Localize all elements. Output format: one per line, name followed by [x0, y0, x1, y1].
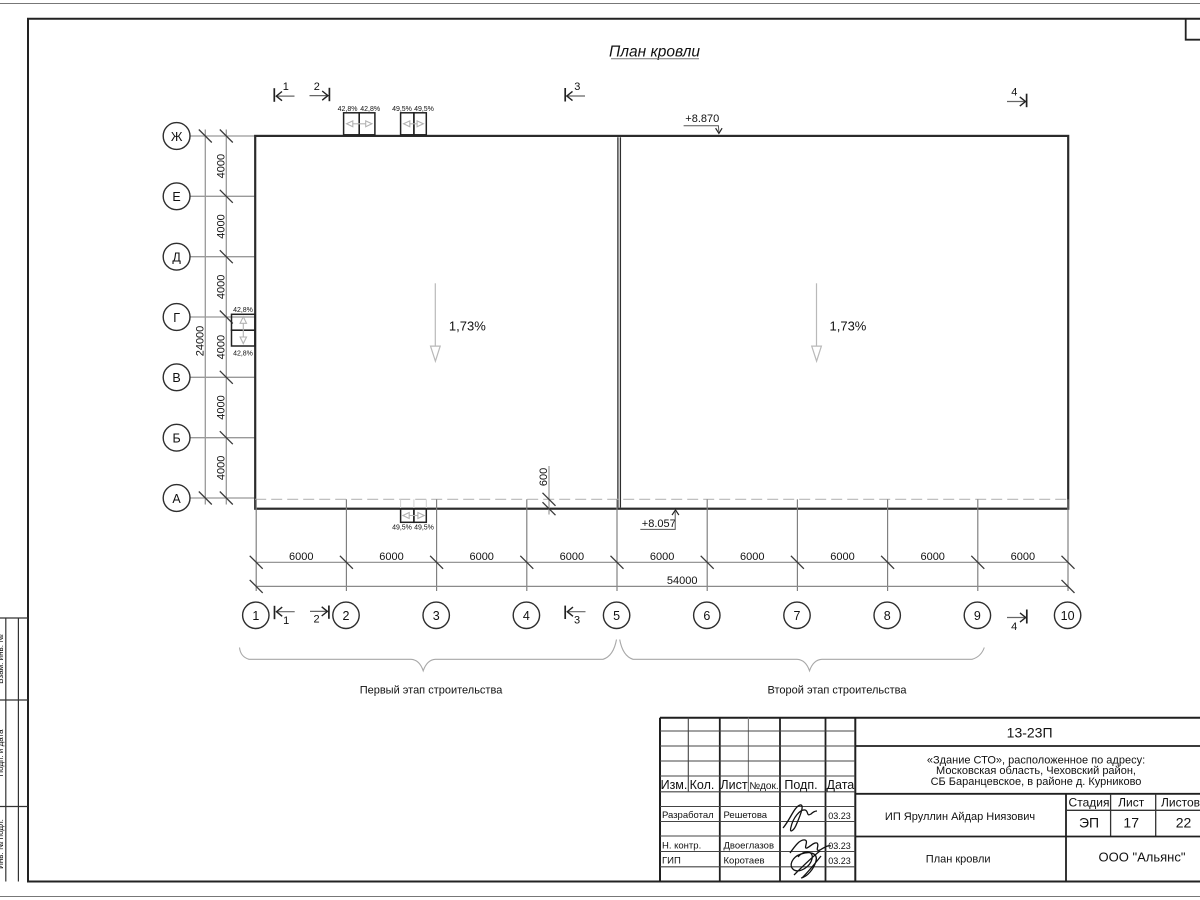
svg-text:Дата: Дата [827, 778, 855, 792]
svg-text:4: 4 [1011, 621, 1017, 633]
svg-text:Первый этап строительства: Первый этап строительства [360, 684, 504, 696]
svg-text:Листов: Листов [1161, 795, 1200, 809]
svg-text:В: В [172, 371, 180, 385]
svg-text:17: 17 [1123, 815, 1139, 831]
svg-text:03.23: 03.23 [828, 856, 851, 866]
svg-text:ГИП: ГИП [662, 856, 681, 867]
svg-text:42,8%: 42,8% [233, 307, 253, 314]
svg-text:Подп.: Подп. [784, 778, 817, 792]
svg-text:03.23: 03.23 [828, 811, 851, 821]
svg-text:Подп. и дата: Подп. и дата [0, 729, 5, 777]
svg-text:№док.: №док. [749, 781, 778, 792]
svg-text:3: 3 [574, 615, 580, 627]
svg-text:03.23: 03.23 [828, 841, 851, 851]
svg-text:Е: Е [172, 190, 180, 204]
svg-text:6000: 6000 [650, 551, 674, 563]
svg-text:Н. контр.: Н. контр. [662, 840, 701, 851]
svg-text:1: 1 [252, 609, 259, 623]
svg-text:42,8%: 42,8% [338, 106, 358, 113]
svg-text:+8.057: +8.057 [642, 518, 676, 530]
svg-text:4000: 4000 [216, 335, 228, 359]
svg-text:6000: 6000 [379, 551, 403, 563]
svg-text:Двоеглазов: Двоеглазов [724, 840, 775, 851]
svg-text:600: 600 [538, 468, 550, 486]
svg-text:10: 10 [1061, 609, 1075, 623]
svg-text:2: 2 [314, 614, 320, 626]
svg-text:1,73%: 1,73% [830, 319, 867, 334]
svg-text:3: 3 [574, 81, 580, 93]
svg-text:СБ Баранцевское, в районе д. К: СБ Баранцевское, в районе д. Курниково [931, 776, 1142, 788]
svg-text:Коротаев: Коротаев [724, 856, 765, 867]
svg-text:24000: 24000 [194, 326, 206, 357]
svg-text:Лист: Лист [720, 778, 747, 792]
svg-text:49,5%: 49,5% [414, 106, 434, 113]
svg-text:ЭП: ЭП [1079, 815, 1099, 831]
svg-text:ИП Яруллин Айдар Ниязович: ИП Яруллин Айдар Ниязович [885, 811, 1035, 823]
svg-text:1: 1 [283, 615, 289, 627]
svg-text:4: 4 [523, 609, 530, 623]
svg-text:6000: 6000 [1011, 551, 1035, 563]
svg-text:7: 7 [794, 609, 801, 623]
svg-text:Инв. № подл.: Инв. № подл. [0, 819, 5, 869]
svg-text:Лист: Лист [1118, 795, 1145, 809]
svg-text:Ж: Ж [171, 130, 183, 144]
svg-text:49,5%: 49,5% [392, 524, 412, 531]
svg-text:Решетова: Решетова [724, 810, 768, 821]
svg-text:Изм.: Изм. [661, 778, 688, 792]
svg-text:План кровли: План кровли [609, 44, 700, 61]
svg-text:План кровли: План кровли [926, 854, 991, 866]
svg-text:4: 4 [1011, 87, 1017, 99]
svg-text:8: 8 [884, 609, 891, 623]
svg-text:22: 22 [1176, 815, 1192, 831]
svg-text:1: 1 [283, 81, 289, 93]
svg-text:2: 2 [314, 81, 320, 93]
svg-text:Стадия: Стадия [1069, 795, 1110, 809]
svg-text:Г: Г [173, 311, 180, 325]
svg-text:4000: 4000 [216, 214, 228, 238]
svg-text:5: 5 [613, 609, 620, 623]
svg-text:ООО "Альянс": ООО "Альянс" [1099, 850, 1186, 865]
svg-text:4000: 4000 [216, 456, 228, 480]
svg-text:Второй этап строительства: Второй этап строительства [768, 684, 908, 696]
svg-text:1,73%: 1,73% [449, 319, 486, 334]
svg-text:42,8%: 42,8% [233, 350, 253, 357]
svg-text:Разработал: Разработал [662, 810, 714, 821]
svg-text:4000: 4000 [216, 154, 228, 178]
svg-text:13-23П: 13-23П [1007, 725, 1053, 741]
svg-text:6000: 6000 [560, 551, 584, 563]
svg-text:Кол.: Кол. [690, 778, 715, 792]
svg-text:6000: 6000 [740, 551, 764, 563]
svg-text:3: 3 [433, 609, 440, 623]
svg-text:49,5%: 49,5% [392, 106, 412, 113]
svg-text:Взам. инв. №: Взам. инв. № [0, 634, 5, 684]
svg-text:А: А [172, 492, 181, 506]
svg-text:9: 9 [974, 609, 981, 623]
svg-text:Д: Д [172, 251, 181, 265]
svg-text:+8.870: +8.870 [685, 113, 719, 125]
svg-text:49,5%: 49,5% [414, 524, 434, 531]
svg-text:6000: 6000 [830, 551, 854, 563]
svg-text:42,8%: 42,8% [360, 106, 380, 113]
svg-text:Б: Б [172, 432, 180, 446]
svg-text:6: 6 [703, 609, 710, 623]
svg-text:6000: 6000 [289, 551, 313, 563]
svg-text:54000: 54000 [667, 575, 698, 587]
svg-text:6000: 6000 [469, 551, 493, 563]
svg-text:4000: 4000 [216, 275, 228, 299]
svg-text:2: 2 [343, 609, 350, 623]
svg-text:4000: 4000 [216, 395, 228, 419]
svg-text:6000: 6000 [920, 551, 944, 563]
